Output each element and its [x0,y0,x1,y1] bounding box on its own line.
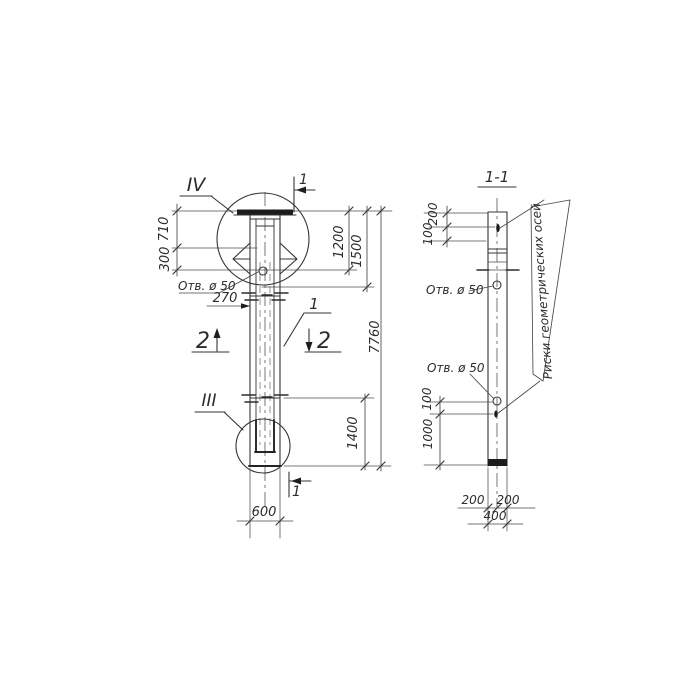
dim-710-label: 710 [157,217,172,242]
hole-label-upper: Отв. ø 50 [426,283,484,297]
dim-1200-label: 1200 [332,225,347,258]
cap-plate [237,210,293,215]
section-bottom-band [488,459,507,466]
section-cut-1-bottom: 1 [289,472,311,500]
pile-column-technical-drawing: IV III 1 1 2 2 [0,0,700,700]
section-cut-2-right: 2 [305,329,341,354]
dim-200-br-label: 200 [497,493,520,507]
dim-200-top-label: 200 [426,202,440,225]
dim-chain-right: 1200 1500 1400 7760 [332,206,385,471]
dim-7760-label: 7760 [368,320,383,353]
dim-400-label: 400 [484,509,507,523]
hole-upper [259,267,267,275]
dim-100-bottom-label: 100 [420,387,434,410]
detail-iv-label: IV [187,174,208,196]
drawing-sheet: IV III 1 1 2 2 [0,0,700,700]
dim-chain-bottom: 200 200 400 [458,468,535,531]
detail-circle-iv [217,193,309,285]
detail-iii-label: III [201,391,216,411]
dim-600-label: 600 [252,505,277,520]
dim-1000-label: 1000 [421,418,435,449]
dim-1400-label: 1400 [346,416,361,449]
section-cut-2-left: 2 [192,328,229,354]
section-2-right-label: 2 [317,329,331,354]
section-2-left-label: 2 [196,329,210,354]
dim-270-label: 270 [213,291,238,306]
dim-300-label: 300 [158,247,173,272]
section-cut-1-top: 1 [294,172,315,212]
hole-label-lower: Отв. ø 50 [427,361,485,375]
section-title: 1-1 [478,168,516,187]
hole-callout-upper: Отв. ø 50 [426,283,493,297]
dim-chain-bottom-left: 100 1000 [420,387,493,470]
dim-200-bl-label: 200 [462,493,485,507]
section-view: 1-1 Отв. ø 50 Отв. ø 50 [420,168,570,531]
axes-note-flag: Риски геометрических осей [497,200,570,414]
dim-100-top-label: 100 [421,222,435,245]
detail-marker-iv: IV [180,174,233,213]
section-1-top-label: 1 [299,172,308,188]
column-outline [233,192,297,508]
part-number-label: 1 [309,295,319,313]
dim-chain-top: 200 100 [421,202,495,247]
detail-circle-iii [236,419,290,473]
section-title-label: 1-1 [485,168,510,186]
dim-1500-label: 1500 [350,234,365,267]
hole-callout-lower: Отв. ø 50 [427,361,494,399]
left-view: IV III 1 1 2 2 [157,172,392,538]
hole-callout-left: Отв. ø 50 [178,272,258,293]
section-1-bottom-label: 1 [292,484,301,500]
dim-chain-left: 710 300 [157,204,181,276]
section-column-outline [477,198,519,508]
axis-mark-upper [496,224,500,232]
detail-marker-iii: III [195,391,243,430]
